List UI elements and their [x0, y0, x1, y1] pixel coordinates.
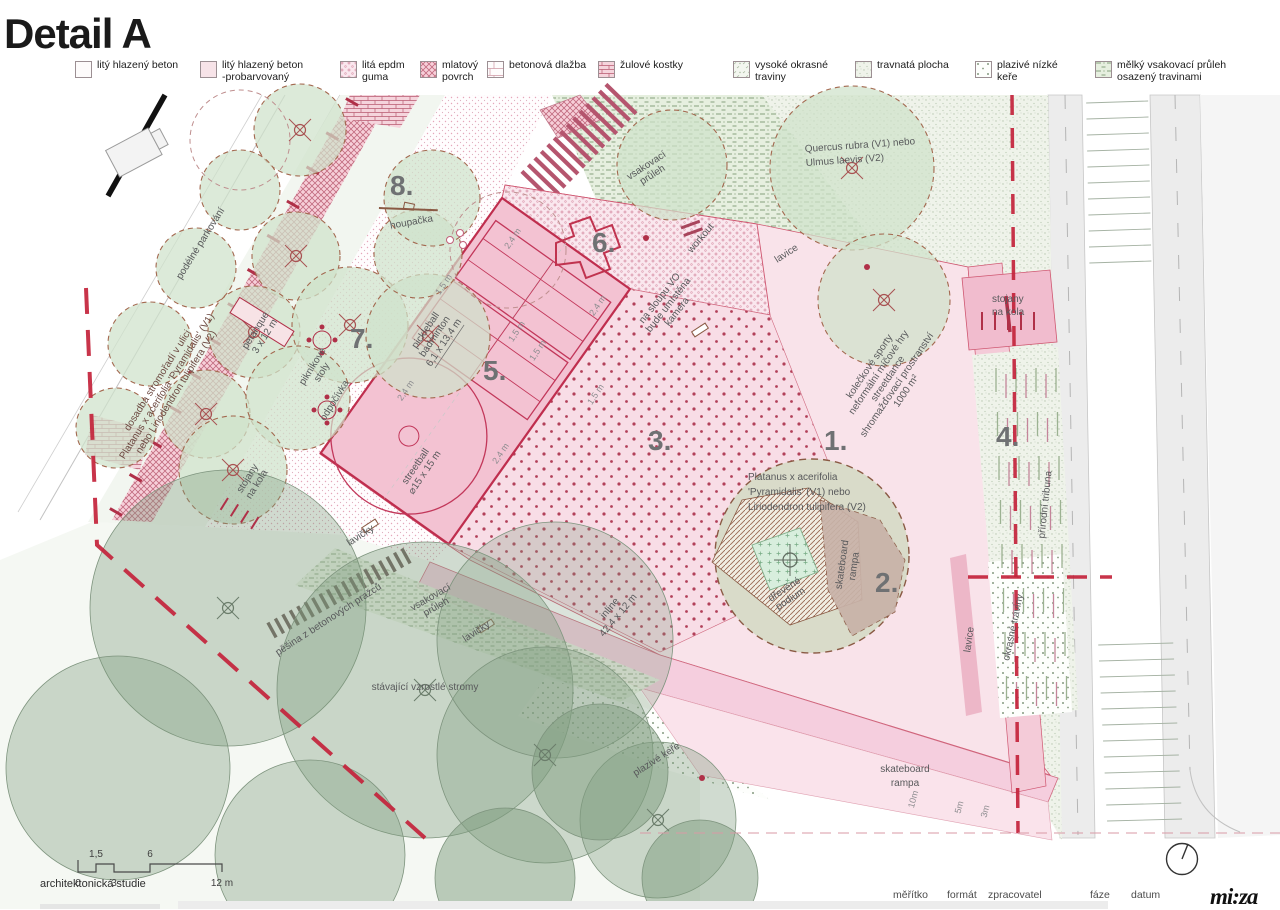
zone-number-7: 7. — [350, 323, 373, 354]
label-stojany-right: stojany — [992, 294, 1024, 305]
cut-off-text — [40, 904, 160, 909]
svg-text:'Pyramidalis' (V1) nebo: 'Pyramidalis' (V1) nebo — [748, 487, 851, 498]
svg-text:rampa: rampa — [891, 778, 920, 789]
svg-text:na kola: na kola — [992, 307, 1025, 318]
label-stavajici-stromy: stávající vzrostlé stromy — [372, 682, 479, 693]
footer-zpracovatel: zpracovatel — [988, 889, 1042, 901]
footer-format: formát — [947, 889, 977, 901]
road-right — [1048, 95, 1280, 838]
zone-number-5: 5. — [483, 355, 506, 386]
label-skate-bottom: skateboard — [880, 764, 929, 775]
north-arrow-icon — [1167, 844, 1198, 875]
svg-text:12 m: 12 m — [211, 878, 233, 889]
studio-logo: mi:za — [1210, 884, 1257, 910]
zone-number-1: 1. — [824, 425, 847, 456]
zone-number-3: 3. — [648, 425, 671, 456]
footer-datum: datum — [1131, 889, 1160, 901]
svg-text:Platanus x acerifolia: Platanus x acerifolia — [748, 472, 838, 483]
footer-faze: fáze — [1090, 889, 1110, 901]
footer-meritko: měřítko — [893, 889, 928, 901]
zone-number-4: 4. — [996, 421, 1019, 452]
footer-study-label: architektonická studie — [40, 878, 146, 890]
site-plan: vsakovacíprůleh houpačka workout na slou… — [0, 0, 1280, 909]
zone-number-6: 6. — [592, 227, 615, 258]
bottom-band — [178, 901, 1108, 909]
svg-text:6: 6 — [147, 849, 153, 860]
svg-text:Liriodendron tulipifera (V2): Liriodendron tulipifera (V2) — [748, 502, 866, 513]
zone-number-8: 8. — [390, 170, 413, 201]
svg-text:1,5: 1,5 — [89, 849, 103, 860]
zone-number-2: 2. — [875, 567, 898, 598]
